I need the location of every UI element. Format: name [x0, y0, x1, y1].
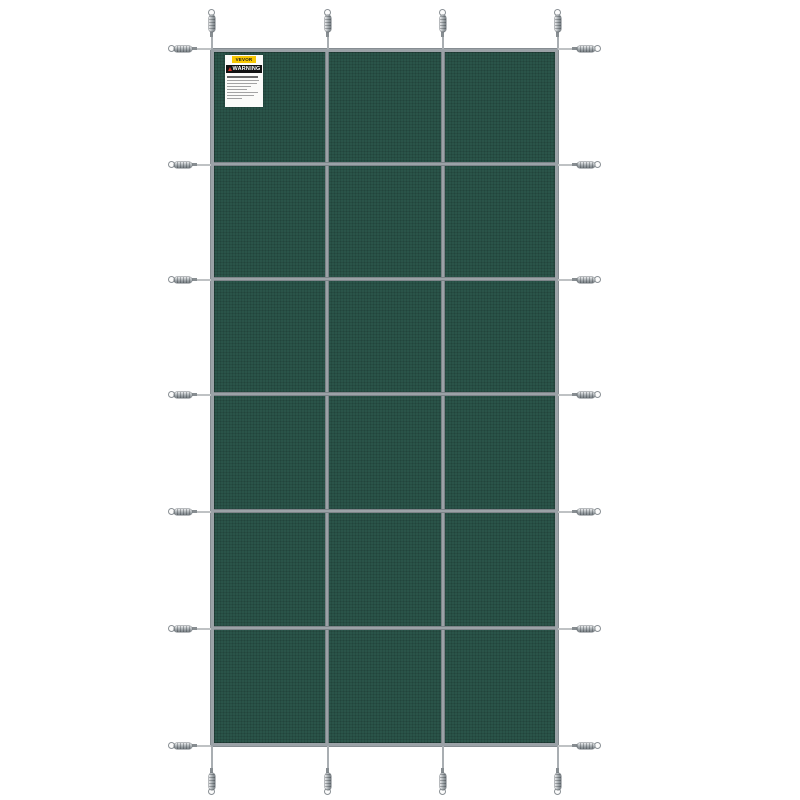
spring-anchor-bottom-3: [438, 746, 447, 795]
brand-badge: VEVOR: [232, 56, 256, 63]
fine-print-line: [227, 95, 254, 96]
grid-strap-horizontal: [214, 509, 555, 513]
grid-strap-vertical: [325, 52, 329, 743]
warning-fine-print: [225, 73, 263, 99]
spring-anchor-left-2: [168, 160, 211, 169]
spring-anchor-right-3: [558, 275, 601, 284]
spring-anchor-left-6: [168, 624, 211, 633]
fine-print-line: [227, 89, 247, 90]
warning-title: WARNING: [233, 66, 261, 72]
product-photo: VEVOR WARNING: [0, 0, 800, 800]
spring-anchor-right-7: [558, 741, 601, 750]
spring-anchor-bottom-1: [207, 746, 216, 795]
spring-anchor-left-3: [168, 275, 211, 284]
spring-anchor-bottom-2: [323, 746, 332, 795]
spring-anchor-top-1: [207, 9, 216, 49]
warning-title-bar: WARNING: [226, 65, 262, 73]
grid-strap-horizontal: [214, 626, 555, 630]
fine-print-line: [227, 83, 257, 84]
spring-anchor-left-7: [168, 741, 211, 750]
spring-anchor-top-2: [323, 9, 332, 49]
spring-anchor-right-2: [558, 160, 601, 169]
grid-strap-horizontal: [214, 392, 555, 396]
spring-anchor-bottom-4: [553, 746, 562, 795]
fine-print-line: [227, 98, 242, 99]
spring-anchor-right-5: [558, 507, 601, 516]
spring-anchor-right-6: [558, 624, 601, 633]
spring-anchor-right-4: [558, 390, 601, 399]
spring-anchor-left-4: [168, 390, 211, 399]
pool-cover: VEVOR WARNING: [211, 49, 558, 746]
spring-anchor-top-4: [553, 9, 562, 49]
spring-anchor-left-1: [168, 44, 211, 53]
fine-print-line: [227, 86, 251, 87]
warning-label: VEVOR WARNING: [225, 55, 263, 107]
fine-print-line: [227, 92, 258, 93]
grid-strap-horizontal: [214, 162, 555, 166]
warning-triangle-icon: [228, 67, 232, 71]
grid-strap-horizontal: [214, 277, 555, 281]
spring-anchor-top-3: [438, 9, 447, 49]
fine-print-line: [227, 76, 258, 78]
spring-anchor-right-1: [558, 44, 601, 53]
grid-strap-vertical: [441, 52, 445, 743]
spring-anchor-left-5: [168, 507, 211, 516]
fine-print-line: [227, 80, 259, 81]
